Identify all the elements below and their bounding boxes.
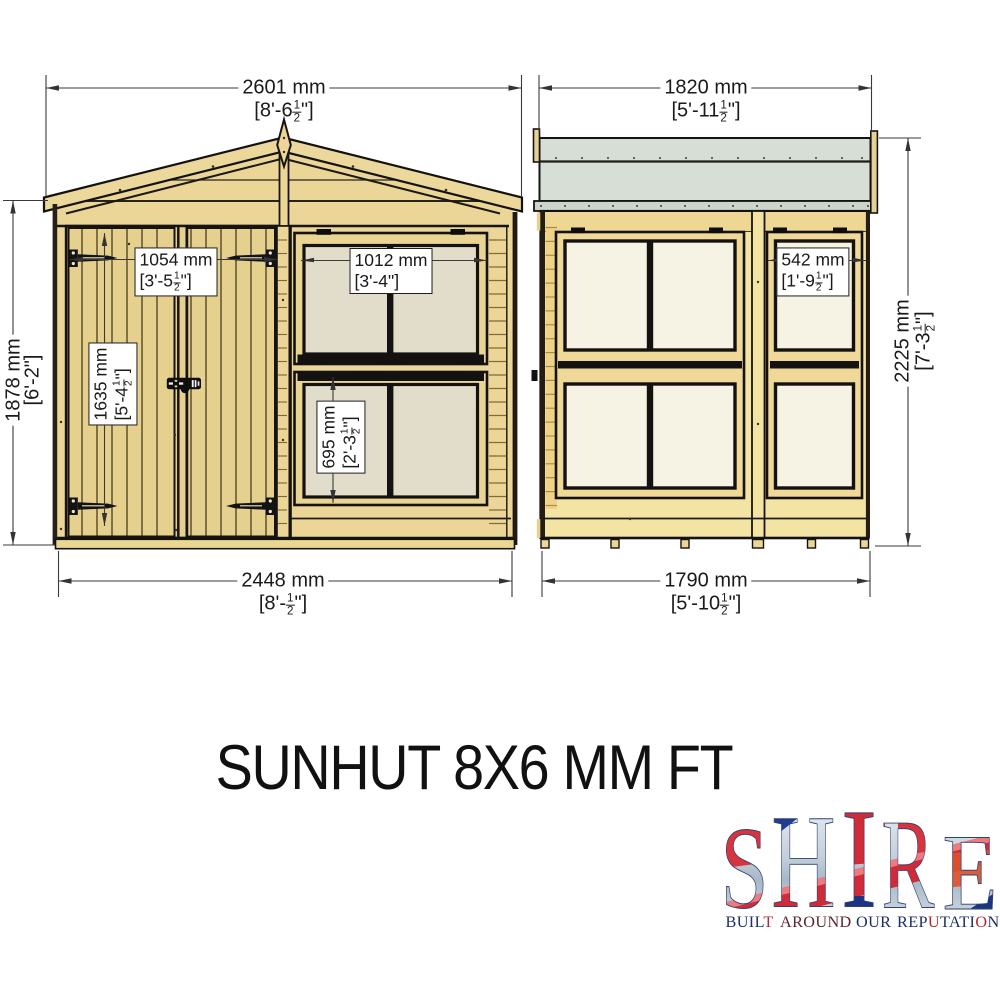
svg-text:REPUTATION: REPUTATION xyxy=(897,913,1000,931)
svg-text:OUR: OUR xyxy=(856,913,891,931)
svg-text:BUILT: BUILT xyxy=(726,913,774,931)
svg-text:AROUND: AROUND xyxy=(780,913,852,931)
